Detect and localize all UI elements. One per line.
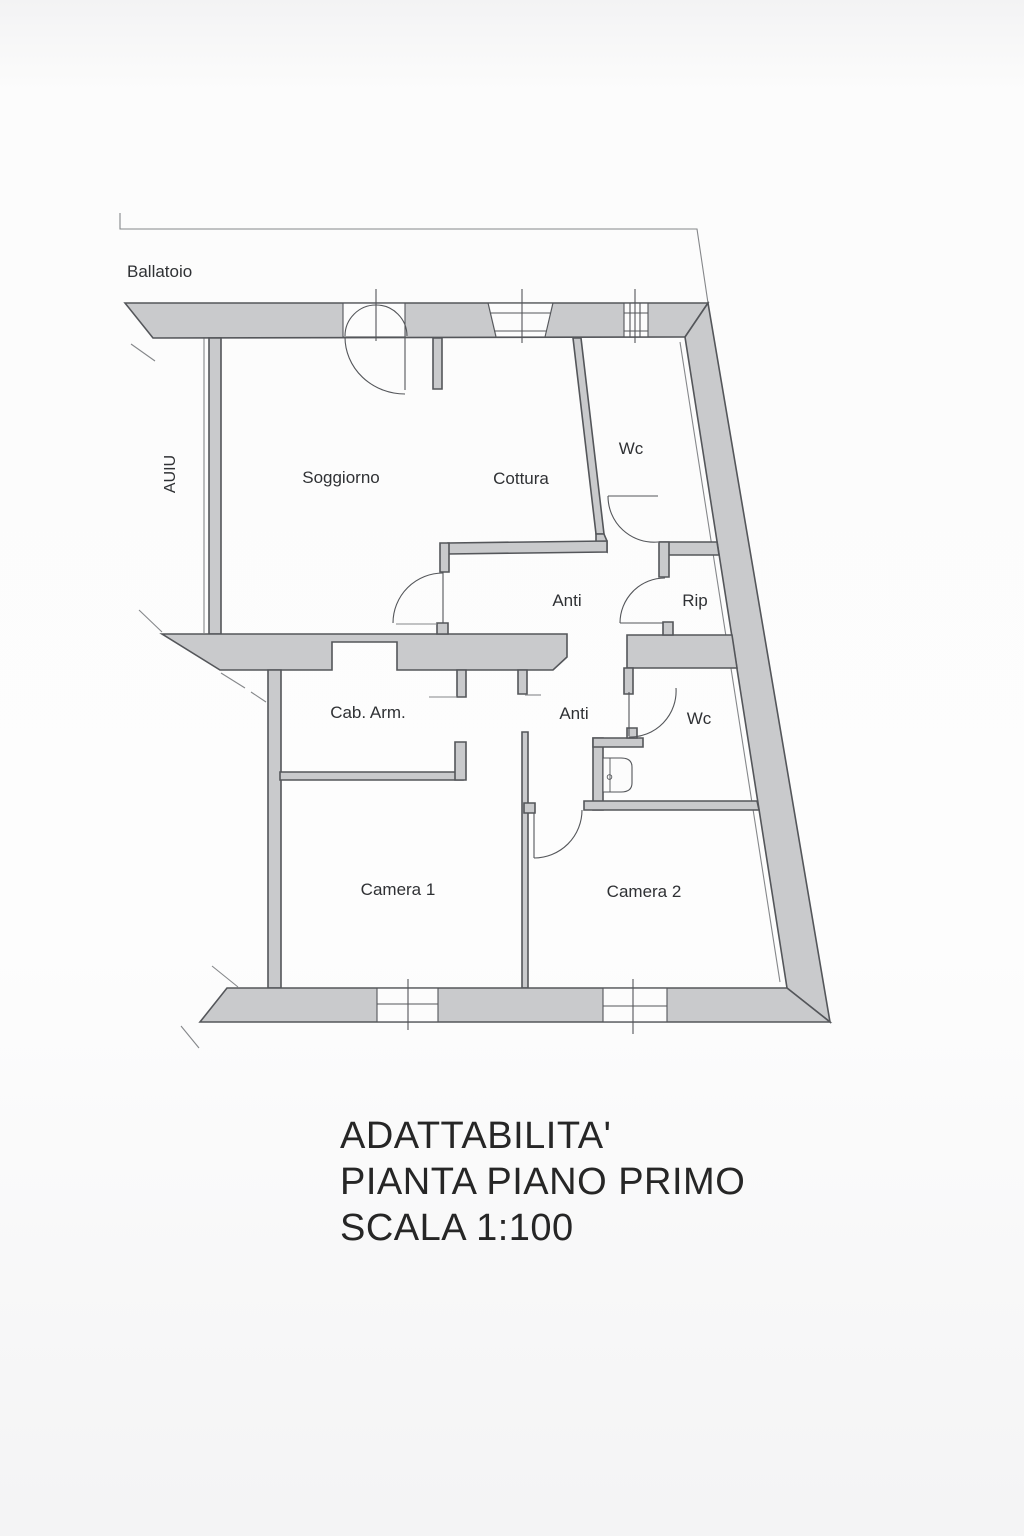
wall-soggiorno-door-tab bbox=[437, 623, 448, 634]
break-mark bbox=[221, 673, 245, 688]
wall-cabarm-bottom bbox=[280, 772, 463, 780]
break-mark bbox=[181, 1026, 199, 1048]
title-line-1: ADATTABILITA' bbox=[340, 1115, 611, 1157]
wall-step-piece bbox=[440, 543, 449, 572]
wall-camera2-door-tab bbox=[524, 803, 535, 813]
toilet-icon bbox=[603, 758, 632, 792]
break-mark bbox=[131, 344, 155, 361]
entry-door-opening bbox=[344, 304, 405, 336]
break-mark bbox=[212, 966, 238, 987]
wall-camera-divider bbox=[522, 732, 528, 988]
room-label-rip: Rip bbox=[682, 591, 708, 610]
wc-upper-door-arc bbox=[608, 496, 658, 542]
rip-door-arc bbox=[620, 578, 665, 623]
walls bbox=[125, 303, 830, 1022]
soggiorno-door-arc bbox=[393, 573, 443, 623]
fixtures bbox=[603, 758, 632, 792]
wall-wc-lower-left bbox=[593, 738, 603, 810]
floor-plan-page: Ballatoio AUIU Soggiorno Cottura Wc Anti… bbox=[0, 0, 1024, 1536]
wall-left-upper-exterior bbox=[209, 338, 221, 634]
room-label-cab-arm: Cab. Arm. bbox=[330, 703, 406, 722]
wall-tab-cabarm bbox=[457, 670, 466, 697]
room-label-wc-upper: Wc bbox=[619, 439, 644, 458]
wall-cabarm-right bbox=[455, 742, 466, 780]
room-label-anti-lower: Anti bbox=[559, 704, 588, 723]
break-mark bbox=[251, 692, 266, 702]
wall-bottom-exterior bbox=[200, 988, 830, 1022]
wall-wc-lower-bottom bbox=[584, 801, 759, 810]
wall-stub-soggiorno-cottura bbox=[433, 338, 442, 389]
camera2-door-arc bbox=[534, 810, 582, 858]
wall-wc-lower-top bbox=[593, 738, 643, 747]
wall-left-lower-exterior bbox=[268, 670, 281, 988]
window-camera2-opening bbox=[604, 989, 667, 1021]
wall-rip-door-tab bbox=[663, 622, 673, 635]
room-label-anti-upper: Anti bbox=[552, 591, 581, 610]
floor-plan-drawing: Ballatoio AUIU Soggiorno Cottura Wc Anti… bbox=[0, 0, 1024, 1536]
room-label-soggiorno: Soggiorno bbox=[302, 468, 380, 487]
wall-mid-band-right bbox=[627, 635, 737, 668]
wall-tab-anti bbox=[518, 670, 527, 694]
title-block: ADATTABILITA' PIANTA PIANO PRIMO SCALA 1… bbox=[340, 1115, 745, 1249]
wall-cottura-wc-divider bbox=[573, 338, 604, 534]
entry-door-swing-arc bbox=[345, 337, 405, 394]
wall-top-exterior bbox=[125, 303, 708, 338]
wall-rip-left-piece bbox=[659, 542, 669, 577]
wall-cottura-bottom bbox=[448, 541, 607, 554]
break-mark bbox=[139, 610, 162, 632]
side-label: AUIU bbox=[162, 455, 179, 493]
room-label-camera-2: Camera 2 bbox=[607, 882, 682, 901]
wall-wc-lower-door-tab bbox=[624, 668, 633, 694]
balcony-edge-line bbox=[120, 213, 708, 303]
room-label-camera-1: Camera 1 bbox=[361, 880, 436, 899]
room-label-wc-lower: Wc bbox=[687, 709, 712, 728]
title-line-2: PIANTA PIANO PRIMO bbox=[340, 1161, 745, 1203]
title-line-3: SCALA 1:100 bbox=[340, 1207, 574, 1249]
balcony-label: Ballatoio bbox=[127, 262, 192, 281]
wall-mid-band-left bbox=[162, 634, 567, 670]
room-label-cottura: Cottura bbox=[493, 469, 549, 488]
